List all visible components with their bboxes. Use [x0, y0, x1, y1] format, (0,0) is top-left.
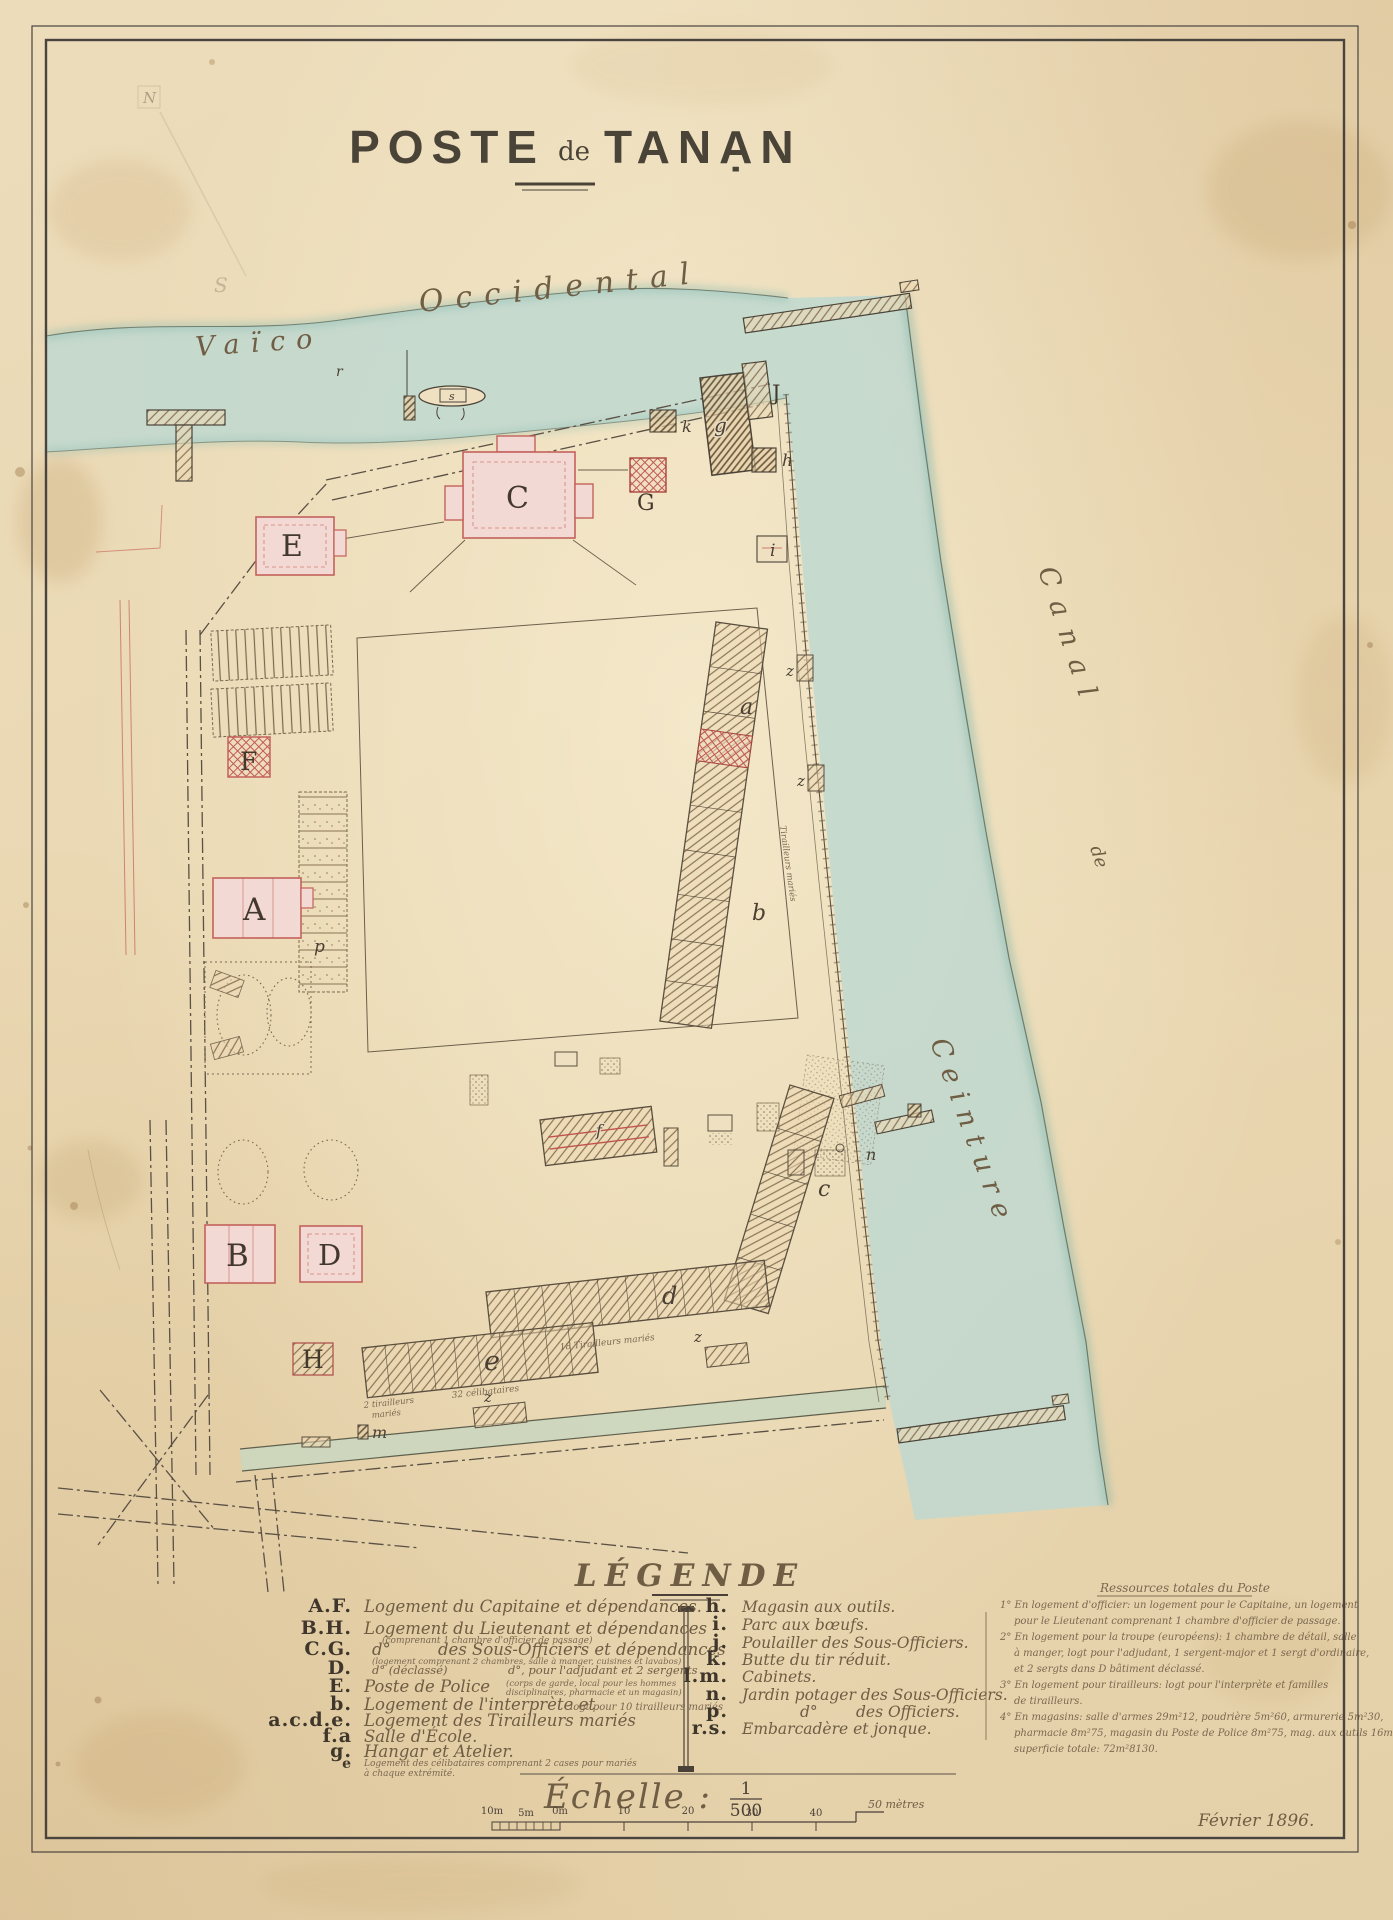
canal-label-canal: Canal	[1031, 563, 1106, 714]
scale-tick-30: 30	[746, 1808, 759, 1819]
garden-bed-hatched-1	[210, 970, 244, 997]
label-E: E	[281, 529, 303, 564]
notes-line-9: pharmacie 8m²75, magasin du Poste de Pol…	[1014, 1728, 1393, 1739]
scale-tick-10: 10	[618, 1806, 631, 1817]
label-J: J	[770, 381, 780, 405]
map-title: POSTE de TANẠN	[349, 121, 802, 190]
building-h	[752, 448, 776, 472]
scale-tick-50m: 50 mètres	[868, 1798, 925, 1811]
t-jetty-stem	[176, 425, 192, 481]
notes-line-10: superficie totale: 72m²8130.	[1014, 1744, 1158, 1755]
cluster-stipple-2	[757, 1103, 779, 1131]
legend-text-n: Jardin potager des Sous-Officiers.	[739, 1686, 1008, 1704]
path-from-c-left	[410, 540, 465, 592]
legend-key-af: A.F.	[307, 1595, 352, 1617]
label-a: a	[740, 695, 753, 720]
notes-line-1: 1° En logement d'officier: un logement p…	[1000, 1600, 1359, 1611]
pink-buildings	[205, 436, 593, 1283]
legend-text-af: Logement du Capitaine et dépendances.	[363, 1597, 702, 1616]
scale-fraction-numerator: 1	[741, 1779, 752, 1799]
stable-row-upper	[211, 625, 333, 681]
far-left-road-2	[166, 1120, 174, 1585]
legend-note-e-low-2: à chaque extrémité.	[364, 1768, 455, 1779]
cluster-shed-1	[708, 1115, 732, 1131]
west-road-outer	[186, 630, 196, 1475]
garden-oval-d	[304, 1140, 358, 1200]
legend-text-lm: Cabinets.	[742, 1668, 816, 1686]
building-e	[362, 1323, 598, 1398]
cluster-hatch-sq	[788, 1150, 804, 1175]
label-b: b	[752, 901, 766, 926]
legend-text-e-poste: Poste de Police	[363, 1677, 490, 1696]
legend-title: LÉGENDE	[574, 1556, 805, 1594]
label-c: c	[818, 1177, 830, 1202]
label-g: g	[714, 413, 727, 437]
label-D: D	[318, 1238, 341, 1272]
path-e-to-c	[336, 522, 444, 540]
legend-key-bh: B.H.	[301, 1617, 352, 1639]
building-d	[486, 1260, 769, 1337]
cluster-hatch-post	[664, 1128, 678, 1166]
building-ab-tirailleurs	[660, 622, 768, 1028]
latrine-z1	[797, 655, 813, 681]
legend-text2-d: d°, pour l'adjudant et 2 sergents	[508, 1663, 698, 1677]
label-p: p	[314, 937, 325, 957]
stable-row-lower	[211, 683, 333, 737]
mid-landing-hut	[908, 1104, 921, 1117]
legend-text-j: Poulailler des Sous-Officiers.	[741, 1634, 969, 1652]
south-road-short	[58, 1514, 420, 1548]
label-d: d	[662, 1282, 677, 1310]
label-z2: z	[796, 772, 805, 790]
cluster-shed-2	[555, 1052, 577, 1066]
scale-tick-10m: 10m	[481, 1806, 504, 1817]
legend-text-k: Butte du tir réduit.	[741, 1651, 891, 1669]
label-A: A	[242, 892, 266, 928]
scale-bar-end-step	[856, 1812, 884, 1822]
map-date: Février 1896.	[1197, 1811, 1314, 1831]
label-G: G	[637, 491, 655, 516]
scale-tick-5m: 5m	[518, 1808, 534, 1819]
garden-oval-b	[218, 1140, 268, 1204]
scale-section: Échelle : 1 500 10m 5m 0m 10 20 30 40	[481, 1774, 956, 1831]
far-left-road-1	[150, 1120, 158, 1585]
red-corner-line	[96, 505, 162, 552]
notes-title: Ressources totales du Poste	[1099, 1581, 1270, 1595]
boat-jetty-post	[404, 396, 415, 420]
legend-key-e-low: e	[342, 1756, 352, 1772]
label-h: h	[782, 451, 793, 471]
label-z1: z	[785, 662, 794, 680]
notes-line-8: 4° En magasins: salle d'armes 29m²12, po…	[999, 1712, 1383, 1723]
divider-cap-bottom	[678, 1766, 694, 1772]
building-G	[630, 458, 666, 492]
legend-left-column: A.F. Logement du Capitaine et dépendance…	[268, 1595, 725, 1779]
label-m: m	[372, 1423, 387, 1442]
building-m-cabinet	[358, 1425, 368, 1439]
red-road-edge-1	[120, 600, 126, 955]
notes-line-2: pour le Lieutenant comprenant 1 chambre …	[1014, 1616, 1341, 1627]
label-C: C	[506, 481, 529, 516]
legend-text-p: d°	[800, 1703, 818, 1721]
label-n: n	[866, 1145, 876, 1164]
label-F: F	[240, 747, 257, 776]
t-jetty-crossbar	[147, 410, 225, 425]
legend-middle-column: h. Magasin aux outils. i. Parc aux bœufs…	[683, 1595, 1007, 1739]
title-de: de	[558, 137, 590, 167]
north-pier-foot	[900, 280, 919, 293]
notes-line-4: à manger, logt pour l'adjudant, 1 sergen…	[1014, 1648, 1369, 1659]
cluster-stipple-3	[815, 1150, 845, 1176]
north-letter: N	[142, 89, 157, 107]
notes-line-5: et 2 sergts dans D bâtiment déclassé.	[1014, 1664, 1205, 1675]
garden-bed-hatched-2	[210, 1036, 243, 1059]
legend-text2-p: des Officiers.	[856, 1703, 960, 1721]
title-poste: POSTE	[349, 121, 545, 173]
legend-key-rs: r.s.	[692, 1717, 728, 1739]
cluster-stipple-5	[470, 1075, 488, 1105]
path-from-c-right	[573, 540, 636, 585]
note-tirailleurs-vertical: Tirailleurs mariés	[777, 825, 799, 903]
label-k: k	[682, 417, 692, 436]
label-B: B	[226, 1238, 249, 1274]
notes-line-7: de tirailleurs.	[1014, 1696, 1083, 1707]
map-sheet: s	[0, 0, 1393, 1920]
title-tanan: TANẠN	[604, 121, 802, 173]
scale-tick-40: 40	[810, 1808, 823, 1819]
latrine-z4	[705, 1343, 749, 1368]
canal-label-de: de	[1085, 843, 1112, 871]
pencil-s-letter: S	[214, 273, 228, 297]
label-e: e	[484, 1346, 500, 1377]
south-pier-foot	[1052, 1394, 1069, 1405]
building-k	[650, 410, 676, 432]
crossroad-diag-1	[100, 1390, 215, 1530]
notes-line-6: 3° En logement pour tirailleurs: logt po…	[1000, 1680, 1328, 1691]
legend-text-d: d° (déclassé)	[372, 1663, 448, 1677]
jonque-label: s	[449, 390, 455, 403]
crossroad-diag-2	[98, 1395, 208, 1545]
scale-tick-20: 20	[682, 1806, 695, 1817]
legend-text-i: Parc aux bœufs.	[741, 1616, 869, 1634]
label-i: i	[770, 541, 775, 561]
label-z4: z	[693, 1328, 702, 1346]
scale-tick-0m: 0m	[552, 1806, 568, 1817]
map-canvas: s	[0, 0, 1393, 1920]
legend-text-h: Magasin aux outils.	[741, 1598, 895, 1616]
small-hatched-bar-sw	[302, 1437, 330, 1447]
south-exit-road-2	[272, 1473, 284, 1592]
notes-line-3: 2° En logement pour la troupe (européens…	[999, 1632, 1357, 1643]
cluster-stipple-1	[708, 1133, 732, 1145]
legend-text-rs: Embarcadère et jonque.	[741, 1720, 932, 1738]
label-H: H	[302, 1345, 324, 1374]
legend-note-e-low-1: Logement des célibataires comprenant 2 c…	[363, 1758, 637, 1769]
cluster-stipple-4	[600, 1058, 620, 1074]
latrine-z2	[808, 765, 824, 791]
red-road-edge-2	[129, 600, 135, 955]
hatched-buildings	[293, 361, 885, 1447]
